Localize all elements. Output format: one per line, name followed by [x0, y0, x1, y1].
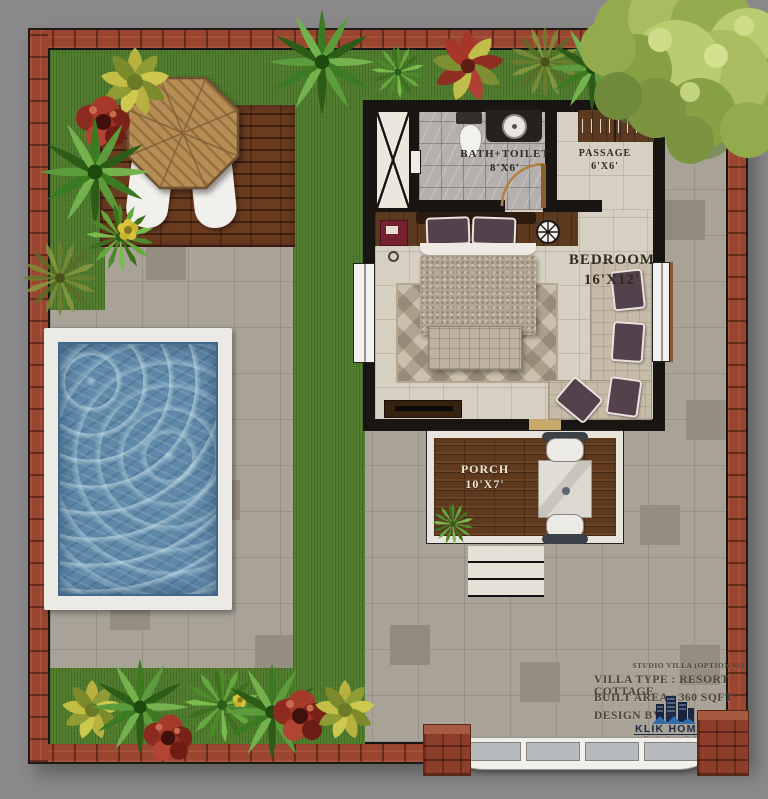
brick-border-right [728, 30, 746, 762]
brick-pillar-right [697, 710, 749, 776]
pillar-right-cap [698, 711, 748, 720]
tv-console [384, 400, 462, 418]
tv-screen [395, 406, 453, 411]
grass-left-band [50, 50, 105, 310]
bed-pillow-right [472, 216, 517, 246]
bed-bench [428, 326, 522, 370]
brand-logo-icon [652, 694, 696, 724]
wall-left-upper [363, 100, 375, 265]
room-size-passage: 6'X6' [555, 161, 655, 173]
nightstand [380, 220, 408, 246]
room-size-bath: 8'X6' [440, 162, 570, 175]
gate-panel-3 [585, 742, 639, 761]
room-size-porch: 10'X7' [440, 477, 530, 492]
table-centerpiece [562, 487, 570, 495]
porch-chair-bottom-back [542, 534, 588, 544]
gate-panel-1 [467, 742, 521, 761]
wardrobe-hangers [582, 119, 650, 133]
plan-option-label: STUDIO VILLA (OPTION 01) [544, 661, 744, 670]
room-label-bath: BATH+TOILET [440, 148, 570, 161]
swimming-pool [58, 342, 218, 596]
nightstand-decor [386, 226, 398, 234]
porch-dining-table [538, 460, 592, 518]
wall-bottom-left [363, 419, 529, 431]
wardrobe-divider [614, 110, 616, 142]
bed-duvet [420, 255, 536, 335]
gate-panel-2 [526, 742, 580, 761]
brick-pillar-left [423, 724, 471, 776]
pillar-left-cap [424, 725, 470, 734]
wall-right-upper [653, 100, 665, 262]
gazebo-roof [108, 58, 258, 208]
gate-panel-4 [644, 742, 698, 761]
site-plan-canvas: BATH+TOILET 8'X6' PASSAGE 6'X6' BEDROOM … [0, 0, 768, 799]
toilet-tank [456, 112, 482, 124]
porch-chair-top [546, 438, 584, 462]
window-left [353, 263, 375, 363]
ceiling-fan-icon [535, 219, 561, 245]
porch-threshold [529, 419, 561, 431]
table-clock [388, 251, 399, 262]
wardrobe [578, 110, 654, 142]
wall-bottom-right [561, 419, 665, 431]
grass-bottom-band [50, 668, 365, 744]
sofa-pillow-2 [611, 321, 646, 363]
shower-cubicle [375, 110, 411, 210]
porch-step-1 [468, 546, 544, 563]
bed-pillow-left [426, 216, 471, 246]
porch-step-2 [468, 563, 544, 580]
porch-step-3 [468, 580, 544, 597]
room-label-bedroom: BEDROOM [548, 252, 676, 269]
sofa-pillow-3 [606, 376, 643, 418]
room-label-porch: PORCH [440, 462, 530, 477]
entrance-gate [459, 737, 703, 770]
brick-border-top [30, 30, 746, 48]
room-size-bedroom: 16'X12' [548, 272, 676, 289]
basin-drain [512, 124, 517, 129]
room-label-passage: PASSAGE [555, 148, 655, 160]
window-left-mullion [364, 264, 366, 362]
